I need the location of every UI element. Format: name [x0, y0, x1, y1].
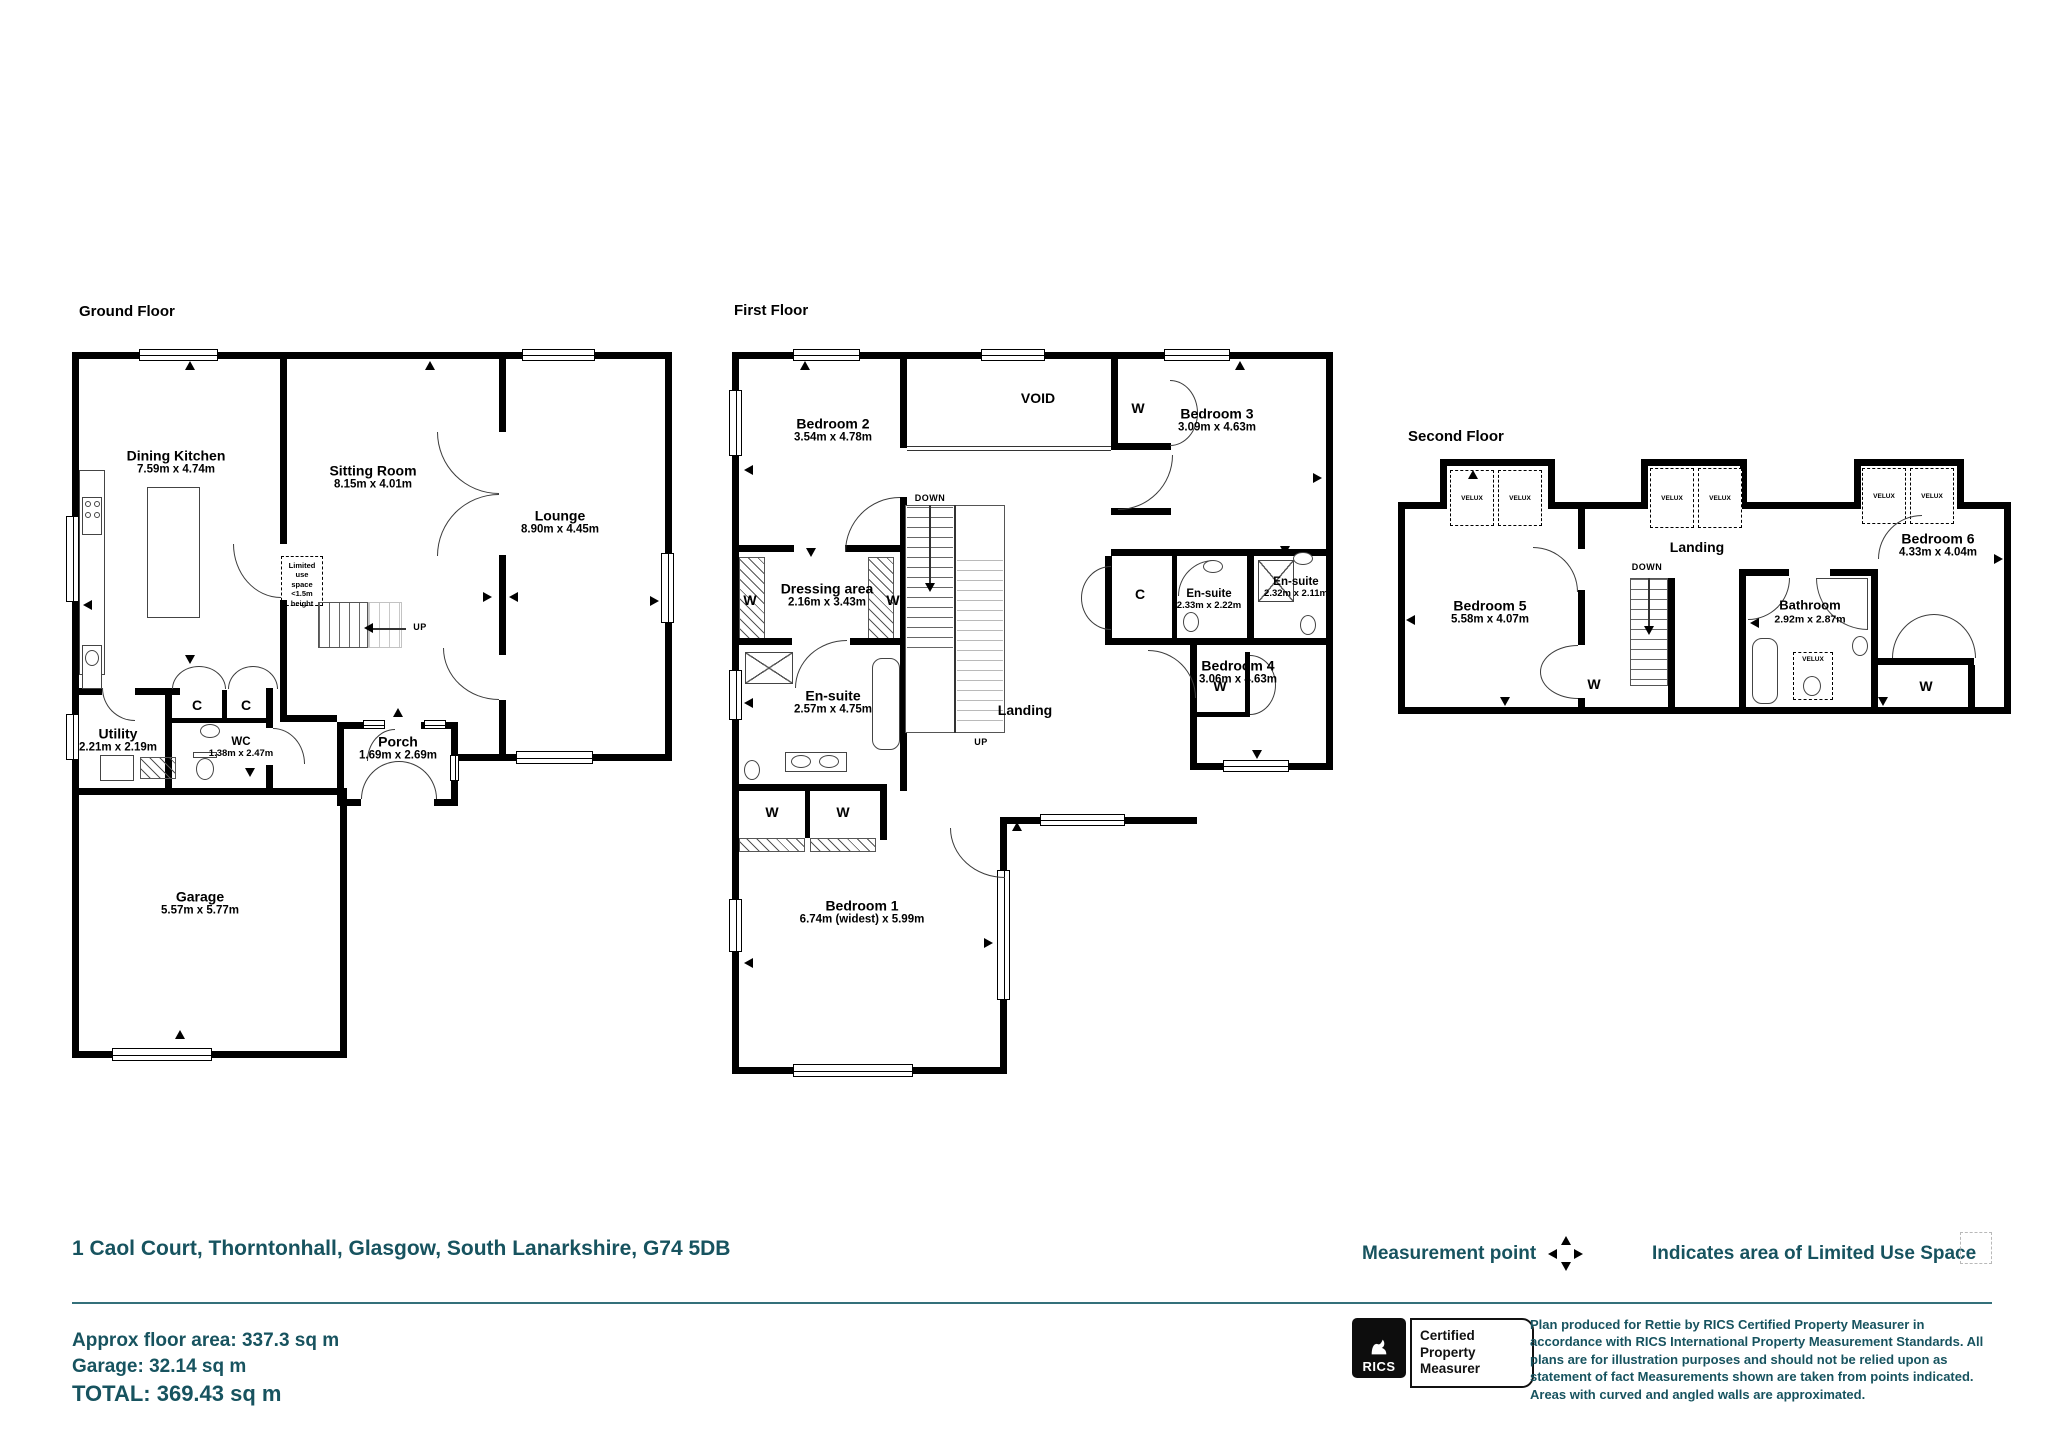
wall: [337, 799, 361, 806]
room-name: Dressing area: [781, 580, 874, 596]
room-dims: 1.38m x 2.47m: [209, 749, 273, 760]
measurement-point-icon: [744, 465, 753, 475]
basin: [819, 755, 839, 768]
wall: [1668, 578, 1675, 714]
stairs-down-label: DOWN: [1632, 562, 1663, 572]
wall: [499, 555, 506, 655]
room-name: Bedroom 5: [1451, 597, 1529, 613]
measurement-point-icon: [1235, 361, 1245, 370]
room-dims: 2.57m x 4.75m: [794, 703, 872, 716]
room-dims: 7.59m x 4.74m: [127, 463, 226, 476]
measurement-point-icon: [393, 708, 403, 717]
stairs-arrow-head: [1644, 626, 1654, 635]
staircase: [368, 602, 402, 648]
door-arc: [228, 666, 253, 689]
staircase: [318, 602, 368, 648]
room-label-bedroom5: Bedroom 5 5.58m x 4.07m: [1451, 597, 1529, 626]
toilet: [744, 760, 760, 780]
room-dims: 2.21m x 2.19m: [79, 741, 157, 754]
wall: [1190, 645, 1197, 770]
wall: [1326, 352, 1333, 770]
total-area: TOTAL: 369.43 sq m: [72, 1381, 281, 1407]
window: [516, 751, 593, 764]
wall: [1641, 459, 1648, 509]
burner: [94, 512, 100, 518]
wall: [1578, 509, 1585, 549]
toilet: [1300, 615, 1316, 635]
arrow-down-icon: [1561, 1262, 1571, 1271]
room-dims: 3.54m x 4.78m: [794, 431, 872, 444]
first-floor-title: First Floor: [734, 302, 808, 319]
rics-logo: RICS: [1352, 1318, 1406, 1378]
wall: [1578, 698, 1585, 714]
door-arc: [845, 497, 900, 552]
limited-use-note: Limited use space <1.5m height: [282, 561, 322, 608]
closet-label: C: [192, 697, 202, 713]
room-name: Porch: [359, 733, 437, 749]
room-label-landing: Landing: [1670, 539, 1724, 555]
kitchen-island: [147, 487, 200, 618]
toilet: [1803, 676, 1821, 696]
door-arc: [361, 761, 399, 799]
wall: [1641, 459, 1747, 466]
wall: [2004, 502, 2011, 714]
wall: [172, 718, 266, 723]
wall: [280, 600, 287, 722]
door-arc: [1540, 672, 1578, 699]
measurement-point-icon: [245, 768, 255, 777]
room-name: Bedroom 3: [1178, 405, 1256, 421]
door-arc: [437, 432, 499, 494]
room-label-sitting-room: Sitting Room 8.15m x 4.01m: [329, 462, 416, 491]
property-address: 1 Caol Court, Thorntonhall, Glasgow, Sou…: [72, 1237, 730, 1261]
wardrobe-label: W: [1587, 676, 1600, 692]
rics-lion-icon: [1368, 1335, 1390, 1359]
measurement-point-label: Measurement point: [1362, 1243, 1536, 1265]
wardrobe-label: W: [836, 804, 849, 820]
wall: [1878, 658, 1974, 665]
room-label-dressing-area: Dressing area 2.16m x 3.43m: [781, 580, 874, 609]
measurement-point-icon: [83, 600, 92, 610]
window: [522, 349, 595, 361]
measurement-point-icon: [1750, 618, 1759, 628]
rics-logo-text: RICS: [1362, 1359, 1395, 1374]
door-arc: [1250, 685, 1276, 715]
measurement-point-icon: [744, 958, 753, 968]
stairs-arrow: [929, 505, 931, 583]
badge-line: Property: [1420, 1345, 1524, 1361]
window: [66, 714, 79, 760]
toilet: [196, 758, 214, 780]
door-arc: [950, 828, 1005, 878]
wall: [280, 352, 287, 544]
window: [66, 516, 79, 602]
room-label-bedroom6: Bedroom 6 4.33m x 4.04m: [1899, 530, 1977, 559]
room-dims: 2.32m x 2.11m: [1264, 589, 1328, 600]
velux-window: VELUX: [1698, 468, 1742, 528]
measurement-point-icon: [185, 655, 195, 664]
wall: [732, 638, 792, 645]
room-label-bedroom3: Bedroom 3 3.09m x 4.63m: [1178, 405, 1256, 434]
room-name: Lounge: [521, 507, 599, 523]
divider: [72, 1302, 1992, 1304]
wall: [280, 715, 337, 722]
room-dims: 5.58m x 4.07m: [1451, 613, 1529, 626]
room-dims: 5.57m x 5.77m: [161, 904, 239, 917]
wall: [900, 352, 907, 448]
disclaimer-text: Plan produced for Rettie by RICS Certifi…: [1530, 1316, 1992, 1403]
wall: [1247, 556, 1254, 638]
wall: [1854, 459, 1964, 466]
room-label-garage: Garage 5.57m x 5.77m: [161, 888, 239, 917]
wall: [1548, 502, 1648, 509]
measurement-point-icon: [800, 361, 810, 370]
wall: [1440, 459, 1447, 509]
door-arc: [1081, 566, 1111, 598]
garage-area: Garage: 32.14 sq m: [72, 1356, 246, 1378]
closet-label: C: [1135, 586, 1145, 602]
room-name: Dining Kitchen: [127, 447, 226, 463]
door-arc: [399, 761, 437, 799]
arrow-up-icon: [1561, 1236, 1571, 1245]
room-label-wc: WC 1.38m x 2.47m: [209, 736, 273, 760]
wall: [72, 688, 102, 695]
burner: [85, 512, 91, 518]
basin: [1852, 636, 1868, 656]
wall: [72, 352, 79, 1058]
room-dims: 3.09m x 4.63m: [1178, 421, 1256, 434]
void-label: VOID: [1021, 390, 1055, 406]
wall: [732, 784, 887, 791]
limited-use-legend-box: [1960, 1232, 1992, 1264]
window: [363, 720, 385, 729]
shower: [745, 652, 793, 684]
stairs-up-label: UP: [974, 737, 988, 747]
door-arc: [1540, 645, 1578, 672]
burner: [85, 501, 91, 507]
measurement-point-icon: [650, 596, 659, 606]
window: [793, 349, 860, 361]
wall: [222, 690, 227, 720]
utility-appliance: [140, 757, 176, 779]
burner: [94, 501, 100, 507]
door-arc: [1533, 547, 1578, 592]
room-name: Bedroom 6: [1899, 530, 1977, 546]
wall: [1957, 459, 1964, 509]
door-arc: [233, 544, 281, 598]
wardrobe-label: W: [1213, 678, 1226, 694]
measurement-point-icon: [1313, 473, 1322, 483]
window: [1164, 349, 1230, 361]
measurement-point-icon: [1252, 750, 1262, 759]
wardrobe-label: W: [765, 804, 778, 820]
room-label-ensuite-c: En-suite 2.57m x 4.75m: [794, 687, 872, 716]
room-dims: 1.69m x 2.69m: [359, 749, 437, 762]
measurement-point-icon: [1500, 697, 1510, 706]
door-arc: [443, 648, 499, 700]
void-edge: [907, 446, 1111, 451]
measurement-point-icon: [1994, 554, 2003, 564]
velux-window: VELUX: [1498, 470, 1542, 526]
room-label-dining-kitchen: Dining Kitchen 7.59m x 4.74m: [127, 447, 226, 476]
room-label-lounge: Lounge 8.90m x 4.45m: [521, 507, 599, 536]
basin: [1293, 552, 1313, 565]
measurement-point-icon: [1468, 470, 1478, 479]
room-dims: 2.92m x 2.87m: [1774, 613, 1845, 625]
room-name: Sitting Room: [329, 462, 416, 478]
room-name: Landing: [998, 702, 1052, 718]
wall: [1854, 459, 1861, 509]
room-dims: 2.33m x 2.22m: [1177, 601, 1241, 612]
wall: [499, 700, 506, 761]
toilet: [1183, 612, 1199, 632]
wall: [805, 791, 810, 838]
wall: [1440, 459, 1555, 466]
wall: [1739, 569, 1746, 714]
wardrobe-front: [739, 838, 805, 852]
measurement-point-icon: [175, 1030, 185, 1039]
measurement-point-icon: [1280, 546, 1290, 555]
window: [1040, 814, 1125, 826]
wall: [499, 352, 506, 432]
wall: [1111, 443, 1171, 450]
utility-sink: [100, 755, 134, 781]
velux-window: VELUX: [1862, 468, 1906, 524]
wall: [880, 791, 887, 840]
wall: [135, 688, 180, 695]
ground-floor-title: Ground Floor: [79, 303, 175, 320]
room-label-ensuite-b: En-suite 2.32m x 2.11m: [1264, 576, 1328, 600]
measurement-point-icon: [425, 361, 435, 370]
wall: [850, 638, 907, 645]
wardrobe-label: W: [743, 592, 756, 608]
room-name: Bedroom 2: [794, 415, 872, 431]
bathtub: [872, 658, 900, 750]
measurement-point-icon: [483, 592, 492, 602]
stairs-arrow-head: [364, 623, 373, 633]
measurement-point-icon: [185, 361, 195, 370]
badge-line: Measurer: [1420, 1361, 1524, 1377]
room-name: Bedroom 1: [800, 897, 925, 913]
floorplan-page: Ground Floor UP: [0, 0, 2048, 1448]
limited-use-legend-label: Indicates area of Limited Use Space: [1652, 1243, 1976, 1265]
measurement-point-icon: [1406, 615, 1415, 625]
wall: [1398, 707, 2011, 714]
basin: [1203, 560, 1223, 573]
room-dims: 2.16m x 3.43m: [781, 596, 874, 609]
room-name: Bathroom: [1774, 599, 1845, 614]
wall: [72, 788, 347, 795]
window: [1223, 760, 1289, 772]
wall: [1548, 459, 1555, 509]
window: [424, 720, 446, 729]
window: [729, 899, 742, 952]
door-arc: [1892, 614, 1934, 658]
wall: [1739, 569, 1789, 576]
room-label-bedroom4: Bedroom 4 3.06m x 4.63m: [1199, 657, 1277, 686]
wardrobe-label: W: [886, 592, 899, 608]
wardrobe-front: [810, 838, 876, 852]
room-name: En-suite: [794, 687, 872, 703]
door-arc: [1148, 650, 1196, 698]
door-arc: [273, 728, 305, 764]
stairs-up-label: UP: [413, 622, 427, 632]
window: [450, 755, 459, 781]
stairs-down-label: DOWN: [915, 493, 946, 503]
wall: [266, 765, 273, 788]
wall: [739, 545, 794, 552]
wall: [434, 799, 458, 806]
window: [112, 1048, 212, 1061]
room-dims: 8.90m x 4.45m: [521, 523, 599, 536]
velux-window: VELUX: [1650, 468, 1694, 528]
limited-use-note-line: Limited use: [282, 561, 322, 580]
wall: [1957, 502, 2011, 509]
room-dims: 4.33m x 4.04m: [1899, 546, 1977, 559]
room-dims: 3.06m x 4.63m: [1199, 673, 1277, 686]
wall: [1197, 712, 1250, 717]
closet-label: C: [241, 697, 251, 713]
door-arc: [1934, 614, 1976, 658]
wall: [1740, 502, 1861, 509]
wall: [1398, 502, 1405, 714]
door-arc: [795, 640, 847, 688]
room-dims: 8.15m x 4.01m: [329, 478, 416, 491]
wall: [1968, 665, 1975, 714]
measurement-point-icon: [1012, 822, 1022, 831]
stairs-arrow: [1648, 578, 1650, 626]
wardrobe-label: W: [1131, 400, 1144, 416]
measurement-point-icon: [806, 548, 816, 557]
window: [729, 390, 742, 456]
window: [981, 349, 1045, 361]
room-label-landing: Landing: [998, 702, 1052, 718]
room-name: Utility: [79, 725, 157, 741]
wall: [337, 722, 344, 806]
measurement-point-icon: [984, 938, 993, 948]
measurement-point-legend-icon: [1548, 1236, 1584, 1272]
window: [139, 349, 218, 361]
stair-divider: [954, 505, 956, 733]
stairs-arrow: [372, 628, 406, 630]
approx-floor-area: Approx floor area: 337.3 sq m: [72, 1330, 339, 1352]
staircase: [957, 560, 1003, 730]
door-arc: [199, 666, 226, 689]
window: [729, 670, 742, 720]
room-label-porch: Porch 1.69m x 2.69m: [359, 733, 437, 762]
arrow-right-icon: [1574, 1249, 1583, 1259]
basin: [791, 755, 811, 768]
door-arc: [102, 688, 135, 721]
measurement-point-icon: [509, 592, 518, 602]
room-name: Bedroom 4: [1199, 657, 1277, 673]
sink-bowl: [85, 650, 99, 666]
door-arc: [437, 494, 499, 556]
wall: [1578, 590, 1585, 645]
door-arc: [1118, 455, 1173, 510]
room-label-utility: Utility 2.21m x 2.19m: [79, 725, 157, 754]
room-name: Landing: [1670, 539, 1724, 555]
room-label-bedroom2: Bedroom 2 3.54m x 4.78m: [794, 415, 872, 444]
second-floor-title: Second Floor: [1408, 428, 1504, 445]
limited-use-note-line: space: [282, 580, 322, 589]
measurement-point-icon: [744, 698, 753, 708]
room-label-bedroom1: Bedroom 1 6.74m (widest) x 5.99m: [800, 897, 925, 926]
stairs-arrow-head: [925, 583, 935, 592]
window: [661, 553, 674, 623]
door-arc: [253, 666, 278, 689]
wall: [1111, 638, 1333, 645]
wall: [266, 688, 273, 728]
room-label-bathroom: Bathroom 2.92m x 2.87m: [1774, 599, 1845, 626]
room-label-ensuite-a: En-suite 2.33m x 2.22m: [1177, 588, 1241, 612]
wardrobe-label: W: [1919, 678, 1932, 694]
wall: [1871, 569, 1878, 714]
wall: [340, 795, 347, 1058]
certified-property-measurer-badge: Certified Property Measurer: [1410, 1318, 1534, 1388]
door-arc: [1081, 598, 1111, 630]
limited-use-note-line: <1.5m height: [282, 589, 322, 608]
room-name: Garage: [161, 888, 239, 904]
measurement-point-icon: [1878, 697, 1888, 706]
badge-line: Certified: [1420, 1328, 1524, 1344]
wall: [1111, 352, 1118, 448]
door-arc: [172, 666, 199, 689]
bathtub: [1752, 638, 1778, 704]
room-dims: 6.74m (widest) x 5.99m: [800, 913, 925, 926]
window: [997, 870, 1010, 1000]
window: [793, 1064, 913, 1077]
arrow-left-icon: [1548, 1249, 1557, 1259]
